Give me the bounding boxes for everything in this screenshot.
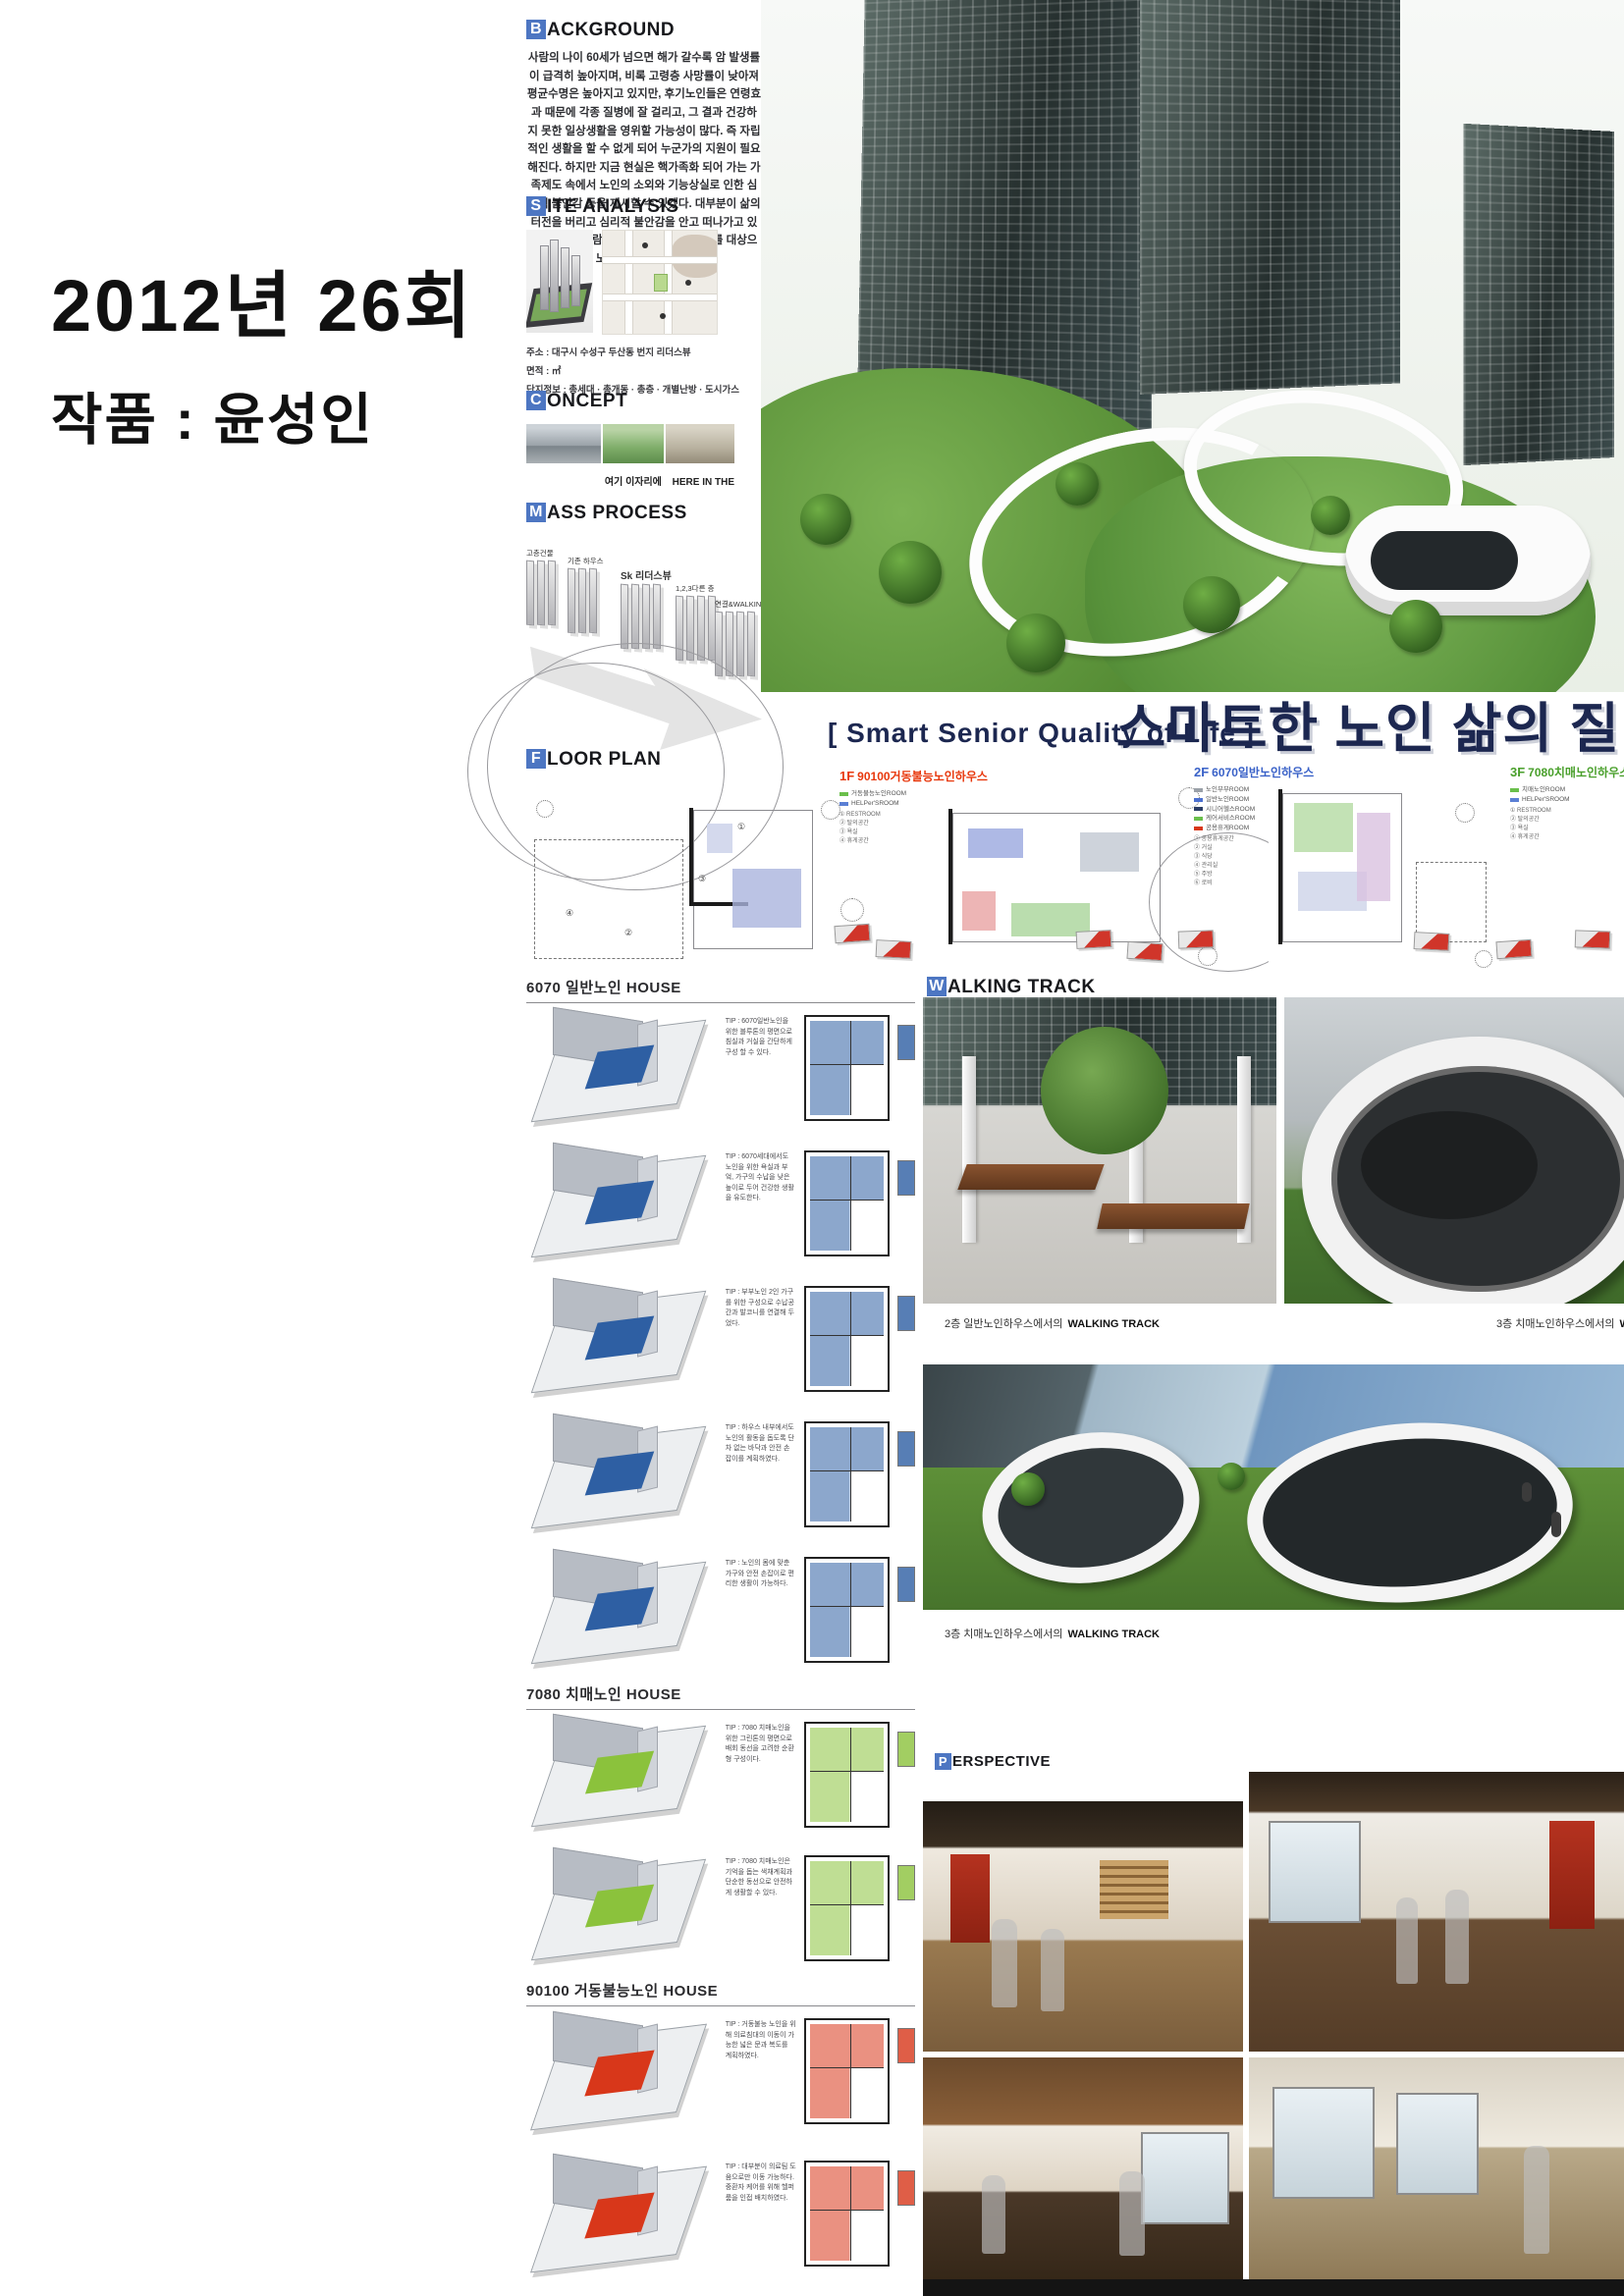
- mass-step-label: 기존 하우스: [568, 556, 604, 566]
- unit-section-chip: [897, 1865, 915, 1900]
- walking-track-caption: 3층 치매노인하우스에서의WALKING TRACK: [945, 1626, 1160, 1641]
- background-header: B ACKGROUND: [526, 20, 762, 39]
- unit-section-chip: [897, 1567, 915, 1602]
- floor-plan-label: 1F90100거동불능노인하우스거동불능노인ROOMHELPer'SROOM① …: [839, 768, 967, 846]
- unit-chip: [1414, 932, 1450, 951]
- unit-section-chip: [897, 1160, 915, 1196]
- legend-item: 일반노인ROOM: [1194, 795, 1322, 805]
- plan-room-number: ①: [737, 822, 745, 832]
- site-analysis-header-label: ITE ANALYSIS: [547, 197, 678, 216]
- unit-plan-diagram: [804, 2018, 891, 2124]
- legend-note: ③ 욕실: [839, 828, 967, 837]
- legend-note: ③ 식당: [1194, 853, 1322, 862]
- footer-strip: [923, 2279, 1624, 2296]
- poster-author-title: 작품 : 윤성인: [51, 375, 374, 455]
- unit-chip: [1076, 930, 1112, 949]
- walking-track-header: W ALKING TRACK: [927, 977, 1096, 996]
- legend-note: ① 공용휴게공간: [1194, 835, 1322, 844]
- house-rows: TIP : 거동불능 노인을 위해 의료침대의 이동이 가능한 넓은 문과 복도…: [526, 2006, 915, 2291]
- site-info-line: 주소 : 대구시 수성구 두산동 번지 리더스뷰: [526, 344, 762, 362]
- concept-photo-green: [603, 424, 664, 463]
- legend-note: ① RESTROOM: [1510, 807, 1620, 816]
- unit-chip: [1495, 939, 1532, 959]
- background-initial: B: [526, 20, 546, 39]
- concept-header: C ONCEPT: [526, 391, 734, 410]
- mass-process-initial: M: [526, 503, 546, 522]
- walking-track-caption: 3층 치매노인하우스에서의WALKING TRACK: [1496, 1315, 1624, 1331]
- headline-korean: 스마트한 노인 삶의 질: [1116, 684, 1620, 763]
- legend-note: ② 탈의공간: [839, 820, 967, 828]
- unit-plan-diagram: [804, 1286, 891, 1392]
- unit-row: TIP : 거동불능 노인을 위해 의료침대의 이동이 가능한 넓은 문과 복도…: [526, 2006, 915, 2149]
- unit-chip: [834, 924, 870, 943]
- site-marker: [654, 274, 668, 292]
- unit-plan-diagram: [804, 1150, 891, 1256]
- mass-step: Sk 리더스뷰: [621, 567, 672, 649]
- perspective-interior-hall: [1249, 2057, 1624, 2279]
- mass-process-header-label: ASS PROCESS: [547, 504, 687, 522]
- unit-row: TIP : 7080 치매노인은 기억을 돕는 색채계획과 단순한 동선으로 안…: [526, 1843, 915, 1977]
- unit-section-chip: [897, 1025, 915, 1060]
- unit-tip-text: TIP : 하우스 내부에서도 노인의 활동을 돕도록 단차 없는 바닥과 안전…: [726, 1410, 796, 1545]
- walking-track-header-label: ALKING TRACK: [947, 978, 1096, 996]
- unit-tip-text: TIP : 7080 치매노인은 기억을 돕는 색채계획과 단순한 동선으로 안…: [726, 1843, 796, 1977]
- competition-poster: 2012년 26회 작품 : 윤성인 B ACKGROUND 사람의 나이 60…: [0, 0, 1624, 2296]
- unit-plan-diagram: [804, 2161, 891, 2267]
- legend-note: ④ 휴게공간: [839, 837, 967, 846]
- mass-step: 기존 하우스: [568, 556, 604, 633]
- poster-year-title: 2012년 26회: [51, 247, 474, 352]
- unit-plan-diagram: [804, 1015, 891, 1121]
- unit-axonometric-image: [526, 1843, 718, 1977]
- site-analysis-initial: S: [526, 196, 546, 216]
- legend-item: 노인부부ROOM: [1194, 785, 1322, 795]
- legend-item: 거동불능노인ROOM: [839, 789, 967, 799]
- legend-note: ⑤ 주방: [1194, 871, 1322, 880]
- unit-row: TIP : 노인의 몸에 맞춘 가구와 안전 손잡이로 편리한 생활이 가능하다…: [526, 1545, 915, 1681]
- unit-axonometric-image: [526, 2006, 718, 2149]
- floor-title: 90100거동불능노인하우스: [857, 770, 988, 783]
- unit-chip: [1126, 941, 1163, 961]
- house-section-90100: 90100 거동불능노인 HOUSE TIP : 거동불능 노인을 위해 의료침…: [526, 1980, 915, 2296]
- unit-tip-text: TIP : 6070일반노인을 위한 블루톤의 평면으로 침실과 거실을 간단하…: [726, 1003, 796, 1139]
- unit-axonometric-image: [526, 1545, 718, 1681]
- unit-chip: [1575, 930, 1611, 948]
- concept-caption: 여기 이자리에 HERE IN THE: [526, 473, 734, 488]
- legend-item: HELPer'SROOM: [839, 799, 967, 809]
- hero-tower: [1140, 0, 1400, 395]
- concept-photo-strip: [526, 424, 734, 463]
- legend-note: ② 거실: [1194, 844, 1322, 853]
- house-rows: TIP : 7080 치매노인을 위한 그린톤의 평면으로 배회 동선을 고려한…: [526, 1710, 915, 1977]
- concept-caption-ko: 여기 이자리에: [605, 477, 662, 488]
- plan-room-number: ②: [624, 928, 632, 938]
- house-rows: TIP : 6070일반노인을 위한 블루톤의 평면으로 침실과 거실을 간단하…: [526, 1003, 915, 1681]
- unit-tip-text: TIP : 6070세대에서도 노인을 위한 욕실과 부엌, 가구의 수납을 낮…: [726, 1139, 796, 1274]
- unit-axonometric-image: [526, 1710, 718, 1843]
- unit-axonometric-image: [526, 1410, 718, 1545]
- walking-track-initial: W: [927, 977, 947, 996]
- unit-section-chip: [897, 1296, 915, 1331]
- unit-tip-text: TIP : 노인의 몸에 맞춘 가구와 안전 손잡이로 편리한 생활이 가능하다…: [726, 1545, 796, 1681]
- legend-item: 시니어헬스ROOM: [1194, 805, 1322, 815]
- unit-row: TIP : 7080 치매노인을 위한 그린톤의 평면으로 배회 동선을 고려한…: [526, 1710, 915, 1843]
- mass-step-label: 고층건물: [526, 548, 556, 559]
- legend-swatch: [1194, 807, 1203, 811]
- hero-tower: [1463, 124, 1613, 465]
- mass-step-label: Sk 리더스뷰: [621, 567, 672, 582]
- hero-render-image: [761, 0, 1624, 692]
- floor-tag: 2F: [1194, 765, 1209, 779]
- unit-section-chip: [897, 2170, 915, 2206]
- legend-note: ④ 휴게공간: [1510, 833, 1620, 842]
- unit-section-chip: [897, 1732, 915, 1767]
- perspective-interior-corridor: [1249, 1772, 1624, 2052]
- background-header-label: ACKGROUND: [547, 21, 675, 39]
- hero-ribbon-building: [1345, 506, 1591, 615]
- legend-note: ③ 욕실: [1510, 825, 1620, 833]
- floor-tag: 3F: [1510, 765, 1525, 779]
- legend-swatch: [839, 802, 848, 806]
- legend-swatch: [1510, 788, 1519, 792]
- legend-swatch: [1194, 798, 1203, 802]
- legend-item: 공용휴게ROOM: [1194, 824, 1322, 833]
- perspective-initial: P: [935, 1753, 951, 1770]
- concept-photo-aerial: [666, 424, 734, 463]
- legend-note: ① RESTROOM: [839, 811, 967, 820]
- floor-title: 6070일반노인하우스: [1212, 766, 1314, 779]
- legend-note: ④ 관리실: [1194, 862, 1322, 871]
- legend-swatch: [1194, 788, 1203, 792]
- perspective-header-label: ERSPECTIVE: [952, 1754, 1051, 1769]
- perspective-interior-lounge: [923, 2057, 1243, 2279]
- floor-tag: 1F: [839, 769, 854, 783]
- plan-room-number: ④: [566, 908, 573, 919]
- perspective-interior-living: [923, 1801, 1243, 2052]
- unit-tip-text: TIP : 7080 치매노인을 위한 그린톤의 평면으로 배회 동선을 고려한…: [726, 1710, 796, 1843]
- unit-row: TIP : 하우스 내부에서도 노인의 활동을 돕도록 단차 없는 바닥과 안전…: [526, 1410, 915, 1545]
- walking-track-caption: 2층 일반노인하우스에서의WALKING TRACK: [945, 1315, 1160, 1331]
- plan-room-number: ③: [698, 874, 706, 884]
- walking-track-render-plaza: [923, 997, 1276, 1304]
- site-map-image: [602, 230, 718, 335]
- section-site-analysis: S ITE ANALYSIS 주소 : 대: [526, 196, 762, 400]
- floor-plan-label: 3F7080치매노인하우스치매노인ROOMHELPer'SROOM① RESTR…: [1510, 764, 1620, 842]
- section-concept: C ONCEPT 여기 이자리에 HERE IN THE: [526, 391, 734, 488]
- unit-section-chip: [897, 1431, 915, 1467]
- concept-photo-city: [526, 424, 601, 463]
- perspective-header: P ERSPECTIVE: [935, 1753, 1051, 1770]
- concept-initial: C: [526, 391, 546, 410]
- mass-process-header: M ASS PROCESS: [526, 503, 789, 522]
- concept-header-label: ONCEPT: [547, 392, 627, 410]
- floor-title: 7080치매노인하우스: [1528, 766, 1624, 779]
- mass-step: 고층건물: [526, 548, 556, 625]
- legend-swatch: [839, 792, 848, 796]
- house-section-6070: 6070 일반노인 HOUSE TIP : 6070일반노인을 위한 블루톤의 …: [526, 977, 915, 1685]
- house-title: 7080 치매노인 HOUSE: [526, 1683, 915, 1710]
- unit-row: TIP : 6070세대에서도 노인을 위한 욕실과 부엌, 가구의 수납을 낮…: [526, 1139, 915, 1274]
- site-analysis-header: S ITE ANALYSIS: [526, 196, 762, 216]
- legend-item: 치매노인ROOM: [1510, 785, 1620, 795]
- unit-tip-text: TIP : 거동불능 노인을 위해 의료침대의 이동이 가능한 넓은 문과 복도…: [726, 2006, 796, 2149]
- legend-swatch: [1194, 827, 1203, 830]
- legend-note: ② 탈의공간: [1510, 816, 1620, 825]
- concept-caption-en: HERE IN THE: [673, 477, 734, 488]
- unit-chip: [1178, 930, 1215, 948]
- mass-step-label: 1,2,3다른 층: [676, 583, 716, 594]
- unit-axonometric-image: [526, 2149, 718, 2291]
- unit-axonometric-image: [526, 1274, 718, 1410]
- walking-track-render-ribbon: [1284, 997, 1624, 1304]
- legend-swatch: [1194, 817, 1203, 821]
- legend-item: HELPer'SROOM: [1510, 795, 1620, 805]
- unit-tip-text: TIP : 대부분이 의료팀 도움으로만 이동 가능하다. 중환자 케어를 위해…: [726, 2149, 796, 2291]
- unit-row: TIP : 대부분이 의료팀 도움으로만 이동 가능하다. 중환자 케어를 위해…: [526, 2149, 915, 2291]
- floor-plan-label: 2F6070일반노인하우스노인부부ROOM일반노인ROOM시니어헬스ROOM케어…: [1194, 764, 1322, 888]
- unit-row: TIP : 6070일반노인을 위한 블루톤의 평면으로 침실과 거실을 간단하…: [526, 1003, 915, 1139]
- site-model-image: [526, 230, 593, 333]
- house-title: 6070 일반노인 HOUSE: [526, 977, 915, 1003]
- unit-tip-text: TIP : 부부노인 2인 가구를 위한 구성으로 수납공간과 발코니를 연결해…: [726, 1274, 796, 1410]
- unit-axonometric-image: [526, 1139, 718, 1274]
- legend-note: ⑥ 로비: [1194, 880, 1322, 888]
- unit-axonometric-image: [526, 1003, 718, 1139]
- unit-section-chip: [897, 2028, 915, 2063]
- unit-row: TIP : 부부노인 2인 가구를 위한 구성으로 수납공간과 발코니를 연결해…: [526, 1274, 915, 1410]
- unit-plan-diagram: [804, 1722, 891, 1828]
- unit-plan-diagram: [804, 1557, 891, 1663]
- house-title: 90100 거동불능노인 HOUSE: [526, 1980, 915, 2006]
- house-section-7080: 7080 치매노인 HOUSE TIP : 7080 치매노인을 위한 그린톤의…: [526, 1683, 915, 1982]
- walking-track-render-lawn: [923, 1364, 1624, 1610]
- unit-plan-diagram: [804, 1421, 891, 1527]
- unit-plan-diagram: [804, 1855, 891, 1961]
- unit-chip: [876, 939, 912, 959]
- legend-swatch: [1510, 798, 1519, 802]
- site-info-line: 면적 : ㎡: [526, 362, 762, 381]
- legend-item: 케어서비스ROOM: [1194, 814, 1322, 824]
